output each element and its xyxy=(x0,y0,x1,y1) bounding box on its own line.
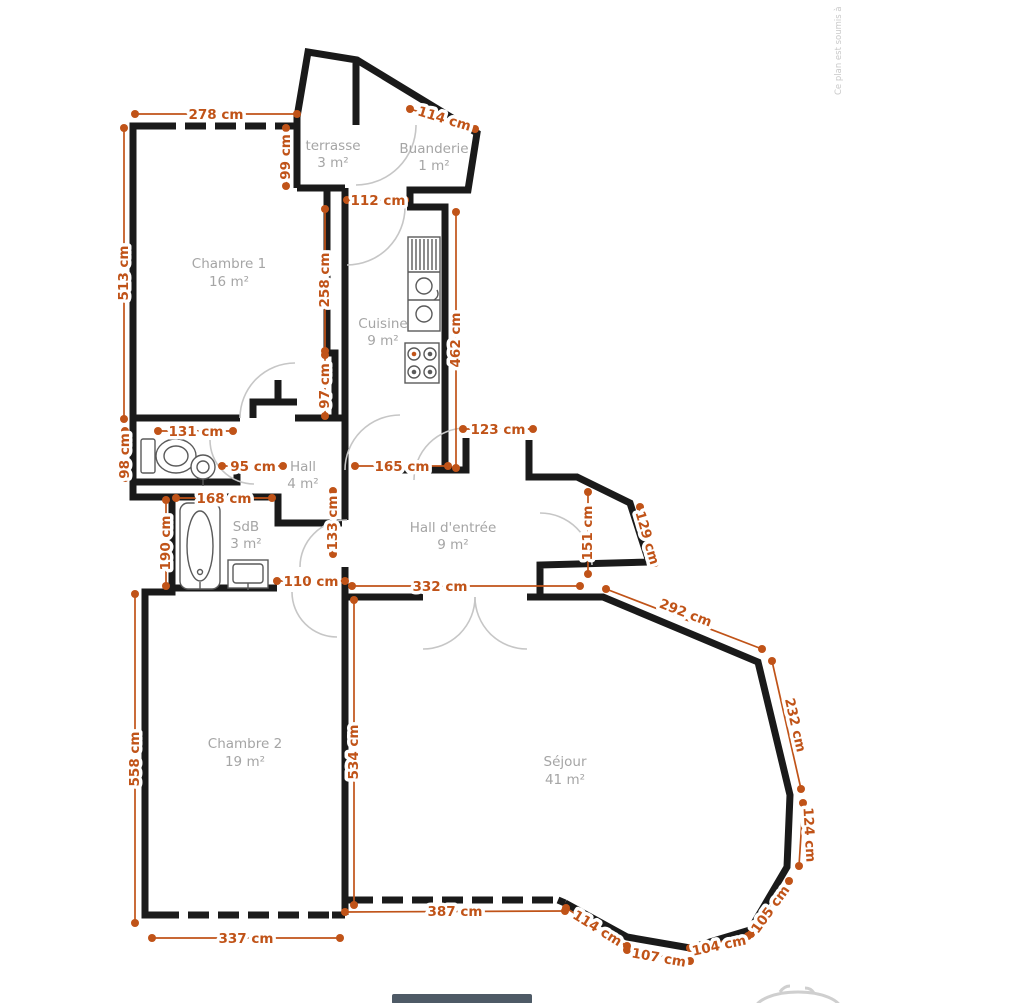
bathtub-icon xyxy=(180,503,220,589)
svg-text:Chambre 2: Chambre 2 xyxy=(208,736,282,752)
dim-258: 258 cm xyxy=(317,205,333,355)
svg-text:97 cm: 97 cm xyxy=(317,363,333,409)
room-label-buanderie: Buanderie 1 m² xyxy=(399,141,468,174)
room-label-hall: Hall 4 m² xyxy=(287,459,318,492)
wall-terrasse-buanderie xyxy=(297,52,477,207)
dim-110: 110 cm xyxy=(273,574,349,590)
svg-text:terrasse: terrasse xyxy=(305,138,360,154)
svg-text:19 m²: 19 m² xyxy=(225,754,265,770)
room-label-chambre2: Chambre 2 19 m² xyxy=(208,736,282,770)
svg-text:131 cm: 131 cm xyxy=(169,424,224,440)
svg-text:3 m²: 3 m² xyxy=(230,536,261,552)
dim-105: 105 cm xyxy=(747,877,793,938)
svg-text:16 m²: 16 m² xyxy=(209,274,249,290)
room-label-terrasse: terrasse 3 m² xyxy=(305,138,360,171)
dim-97: 97 cm xyxy=(317,351,333,420)
door-arc-sejour-left xyxy=(423,597,475,649)
room-label-chambre1: Chambre 1 16 m² xyxy=(192,256,266,290)
stove-icon xyxy=(405,343,439,383)
svg-text:Buanderie: Buanderie xyxy=(399,141,468,157)
room-label-hall-entree: Hall d'entrée 9 m² xyxy=(410,520,497,553)
bottom-bar xyxy=(392,994,532,1003)
fixtures xyxy=(141,237,440,590)
svg-text:3 m²: 3 m² xyxy=(317,155,348,171)
dim-129: 129 cm xyxy=(632,503,663,567)
svg-text:95 cm: 95 cm xyxy=(230,459,276,475)
dim-112: 112 cm xyxy=(343,193,409,209)
floor-plan-svg: terrasse 3 m² Buanderie 1 m² Chambre 1 1… xyxy=(0,0,1024,1003)
dim-387: 387 cm xyxy=(341,904,569,920)
room-label-sejour: Séjour 41 m² xyxy=(544,754,587,788)
floor-plan-page: terrasse 3 m² Buanderie 1 m² Chambre 1 1… xyxy=(0,0,1024,1003)
svg-text:129 cm: 129 cm xyxy=(632,509,663,566)
svg-text:558 cm: 558 cm xyxy=(127,732,143,787)
sink-icon xyxy=(228,560,268,590)
svg-text:Hall: Hall xyxy=(290,459,316,475)
svg-text:232 cm: 232 cm xyxy=(781,697,809,754)
door-arc-chambre1 xyxy=(240,363,295,418)
svg-text:337 cm: 337 cm xyxy=(219,931,274,947)
dim-131: 131 cm xyxy=(154,424,237,440)
dim-98: 98 cm xyxy=(117,427,133,482)
svg-text:110 cm: 110 cm xyxy=(284,574,339,590)
kitchen-sink-icon xyxy=(408,237,440,331)
dim-292: 292 cm xyxy=(602,585,766,653)
svg-text:462 cm: 462 cm xyxy=(448,313,464,368)
svg-text:123 cm: 123 cm xyxy=(471,422,526,438)
room-label-sdb: SdB 3 m² xyxy=(230,519,261,552)
svg-text:98 cm: 98 cm xyxy=(117,433,133,479)
door-arc-chambre2 xyxy=(292,592,337,637)
svg-text:99 cm: 99 cm xyxy=(278,134,294,180)
dim-133: 133 cm xyxy=(325,487,341,558)
partial-logo-icon xyxy=(755,986,841,1003)
svg-text:1 m²: 1 m² xyxy=(418,158,449,174)
dim-99: 99 cm xyxy=(278,124,294,190)
svg-text:133 cm: 133 cm xyxy=(325,496,341,551)
svg-text:387 cm: 387 cm xyxy=(428,904,483,920)
svg-text:165 cm: 165 cm xyxy=(375,459,430,475)
door-arc-cuisine-top xyxy=(347,207,405,265)
svg-text:SdB: SdB xyxy=(233,519,259,535)
wall-chambre1-bottom xyxy=(133,380,345,418)
svg-text:9 m²: 9 m² xyxy=(437,537,468,553)
svg-text:Cuisine: Cuisine xyxy=(358,316,407,332)
svg-text:112 cm: 112 cm xyxy=(351,193,406,209)
svg-text:124 cm: 124 cm xyxy=(800,807,819,863)
svg-text:190 cm: 190 cm xyxy=(158,516,174,571)
dim-123: 123 cm xyxy=(459,422,537,438)
room-label-cuisine: Cuisine 9 m² xyxy=(358,316,407,349)
svg-text:41 m²: 41 m² xyxy=(545,772,585,788)
svg-text:168 cm: 168 cm xyxy=(197,491,252,507)
watermark-text: Ce plan est soumis à xyxy=(834,6,844,95)
svg-text:278 cm: 278 cm xyxy=(189,107,244,123)
dim-124: 124 cm xyxy=(795,799,818,870)
svg-text:151 cm: 151 cm xyxy=(580,506,596,561)
dim-95: 95 cm xyxy=(218,459,287,475)
dim-337: 337 cm xyxy=(148,931,344,947)
svg-text:332 cm: 332 cm xyxy=(413,579,468,595)
door-arc-sejour-right xyxy=(475,597,527,649)
svg-text:Hall d'entrée: Hall d'entrée xyxy=(410,520,497,536)
svg-text:4 m²: 4 m² xyxy=(287,476,318,492)
svg-text:534 cm: 534 cm xyxy=(346,725,362,780)
svg-text:513 cm: 513 cm xyxy=(116,246,132,301)
svg-text:9 m²: 9 m² xyxy=(367,333,398,349)
dim-332: 332 cm xyxy=(348,579,584,595)
svg-text:114 cm: 114 cm xyxy=(416,103,473,134)
dim-558: 558 cm xyxy=(127,590,143,927)
svg-text:Chambre 1: Chambre 1 xyxy=(192,256,266,272)
svg-text:258 cm: 258 cm xyxy=(317,253,333,308)
dim-278: 278 cm xyxy=(131,107,301,123)
svg-text:Séjour: Séjour xyxy=(544,754,587,770)
